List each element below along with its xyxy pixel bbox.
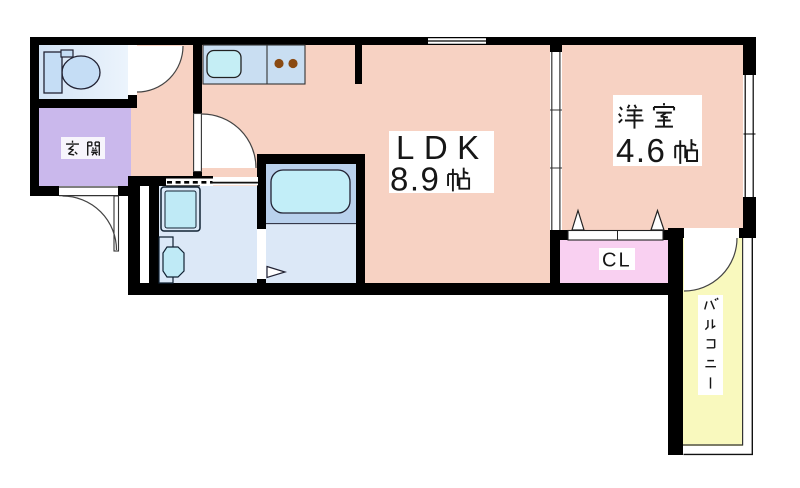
svg-text:CL: CL xyxy=(602,250,632,272)
svg-text:4.6: 4.6 xyxy=(616,132,666,169)
svg-text:8.9: 8.9 xyxy=(390,161,440,198)
